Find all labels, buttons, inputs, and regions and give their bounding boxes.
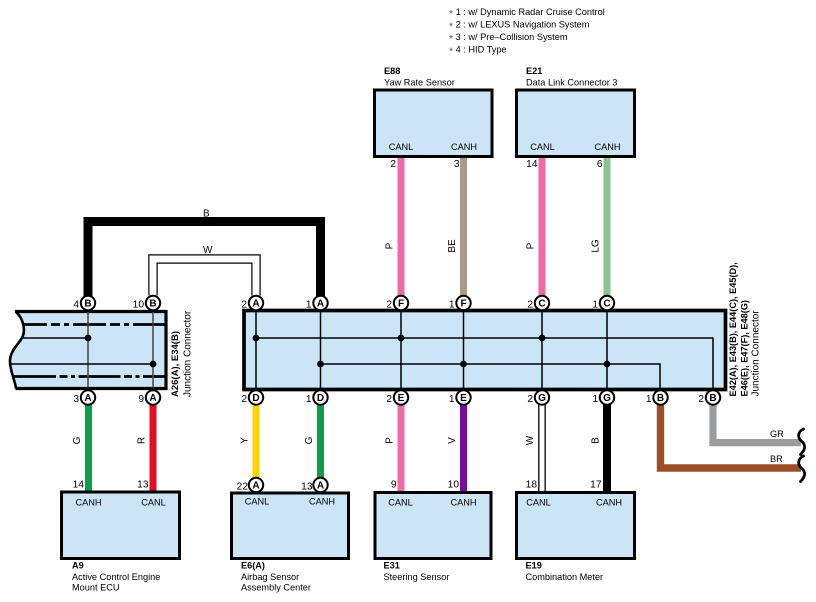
svg-text:CANH: CANH — [450, 498, 476, 508]
svg-text:BR: BR — [770, 454, 783, 464]
svg-text:CANH: CANH — [596, 498, 622, 508]
svg-text:C: C — [538, 299, 545, 310]
svg-text:F: F — [398, 299, 404, 310]
svg-text:Mount ECU: Mount ECU — [72, 583, 120, 593]
svg-text:E19: E19 — [526, 561, 542, 571]
svg-text:G: G — [304, 436, 315, 444]
svg-text:13: 13 — [137, 480, 149, 491]
svg-text:CANH: CANH — [309, 497, 335, 507]
svg-text:W: W — [203, 245, 213, 256]
svg-text:10: 10 — [448, 480, 460, 491]
svg-text:18: 18 — [526, 480, 538, 491]
svg-text:BE: BE — [447, 239, 458, 253]
svg-text:A: A — [252, 299, 259, 310]
svg-text:2: 2 — [241, 300, 247, 311]
svg-text:1: 1 — [449, 300, 455, 311]
svg-text:A: A — [317, 481, 324, 492]
svg-text:E31: E31 — [384, 561, 400, 571]
svg-text:9: 9 — [138, 394, 144, 405]
svg-text:E21: E21 — [526, 66, 542, 76]
svg-text:B: B — [149, 299, 156, 310]
svg-text:1: 1 — [592, 300, 598, 311]
svg-text:2: 2 — [390, 159, 396, 170]
svg-text:14: 14 — [526, 159, 538, 170]
svg-text:CANL: CANL — [245, 497, 270, 507]
svg-text:2: 2 — [386, 394, 392, 405]
svg-text:P: P — [385, 242, 396, 249]
svg-text:Airbag Sensor: Airbag Sensor — [241, 572, 299, 582]
svg-text:A26(A), E34(B): A26(A), E34(B) — [170, 331, 181, 397]
svg-text:A: A — [84, 393, 91, 404]
svg-text:Yaw Rate Sensor: Yaw Rate Sensor — [384, 78, 455, 88]
svg-text:D: D — [252, 393, 259, 404]
svg-text:CANL: CANL — [141, 498, 166, 508]
svg-text:E: E — [460, 393, 467, 404]
svg-text:A: A — [149, 393, 156, 404]
svg-text:B: B — [709, 393, 716, 404]
svg-text:2: 2 — [386, 300, 392, 311]
svg-text:GR: GR — [770, 429, 784, 439]
svg-text:W: W — [525, 435, 536, 445]
svg-text:1: 1 — [449, 394, 455, 405]
svg-text:22: 22 — [237, 482, 249, 493]
svg-text:CANL: CANL — [389, 142, 414, 152]
svg-text:CANL: CANL — [526, 498, 551, 508]
svg-text:Data Link Connector 3: Data Link Connector 3 — [526, 78, 617, 88]
svg-text:Junction Connector: Junction Connector — [183, 310, 194, 397]
svg-text:B: B — [591, 437, 602, 444]
svg-text:3: 3 — [454, 159, 460, 170]
svg-text:1: 1 — [306, 394, 312, 405]
svg-text:6: 6 — [597, 159, 603, 170]
svg-text:4: 4 — [73, 300, 79, 311]
svg-text:G: G — [538, 393, 546, 404]
svg-text:E46(E), E47(F), E48(G): E46(E), E47(F), E48(G) — [740, 300, 750, 397]
svg-text:CANL: CANL — [388, 498, 413, 508]
svg-text:CANL: CANL — [530, 142, 555, 152]
svg-text:A9: A9 — [72, 561, 84, 571]
svg-text:E88: E88 — [384, 66, 400, 76]
svg-text:Assembly Center: Assembly Center — [241, 583, 311, 593]
svg-text:V: V — [447, 437, 458, 444]
svg-text:2: 2 — [527, 300, 533, 311]
svg-text:2: 2 — [527, 394, 533, 405]
svg-text:E42(A), E43(B), E44(C), E45(D): E42(A), E43(B), E44(C), E45(D), — [728, 262, 738, 396]
svg-text:B: B — [657, 393, 664, 404]
svg-text:R: R — [137, 437, 148, 444]
svg-text:G: G — [72, 436, 83, 444]
svg-text:Junction Connector: Junction Connector — [751, 310, 762, 397]
svg-text:E6(A): E6(A) — [241, 561, 265, 571]
svg-text:Steering Sensor: Steering Sensor — [384, 572, 450, 582]
svg-text:14: 14 — [73, 480, 85, 491]
svg-text:13: 13 — [301, 482, 313, 493]
svg-text:2: 2 — [241, 394, 247, 405]
svg-text:LG: LG — [591, 239, 602, 253]
svg-text:Y: Y — [240, 437, 251, 444]
svg-text:CANH: CANH — [594, 142, 620, 152]
svg-text:C: C — [603, 299, 610, 310]
svg-text:Combination Meter: Combination Meter — [526, 572, 604, 582]
svg-text:1: 1 — [592, 394, 598, 405]
svg-text:9: 9 — [391, 480, 397, 491]
svg-text:10: 10 — [133, 300, 145, 311]
svg-text:B: B — [84, 299, 91, 310]
svg-text:2: 2 — [698, 394, 704, 405]
svg-text:E: E — [398, 393, 405, 404]
svg-text:3: 3 — [73, 394, 79, 405]
svg-text:1: 1 — [306, 300, 312, 311]
svg-text:CANH: CANH — [75, 498, 101, 508]
svg-text:17: 17 — [590, 480, 602, 491]
svg-text:P: P — [385, 437, 396, 444]
svg-text:D: D — [317, 393, 324, 404]
svg-text:1: 1 — [646, 394, 652, 405]
svg-text:B: B — [203, 209, 210, 220]
svg-text:Active Control Engine: Active Control Engine — [72, 572, 160, 582]
svg-text:G: G — [603, 393, 611, 404]
svg-text:A: A — [317, 299, 324, 310]
svg-text:CANH: CANH — [451, 142, 477, 152]
svg-text:A: A — [252, 481, 259, 492]
svg-text:P: P — [526, 242, 537, 249]
svg-text:F: F — [460, 299, 466, 310]
